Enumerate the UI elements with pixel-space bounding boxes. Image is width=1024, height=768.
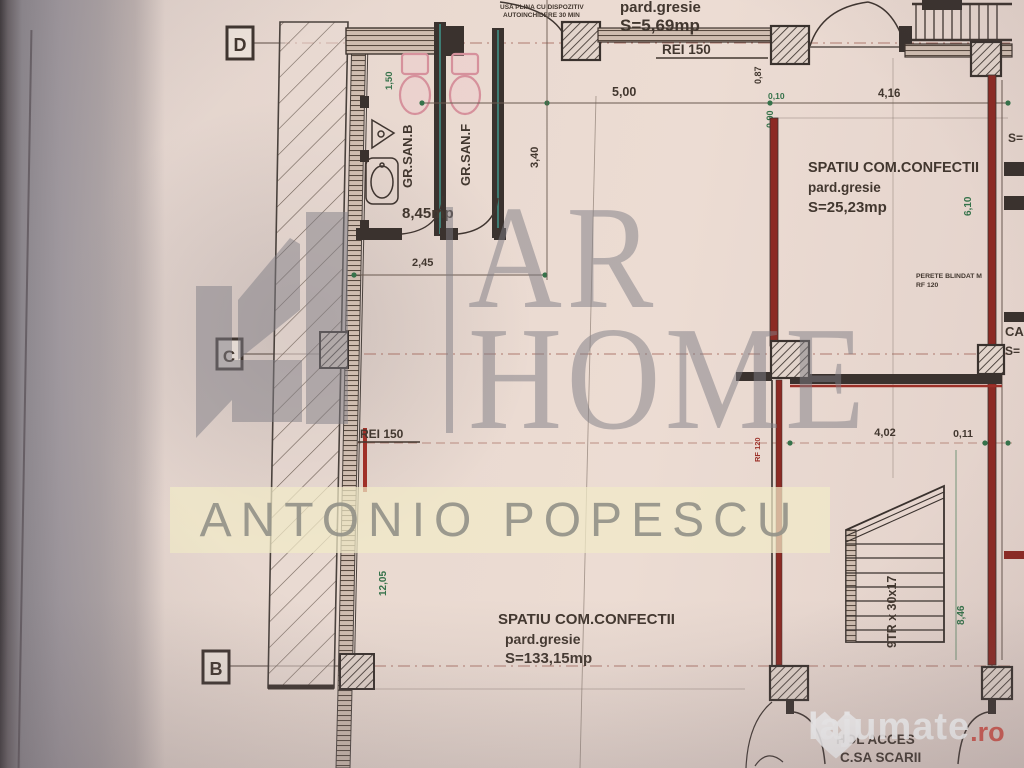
column-axis-b-mid bbox=[770, 666, 808, 700]
site-tld: .ro bbox=[970, 717, 1005, 748]
toilet-san-b bbox=[400, 54, 430, 114]
dim-6-10: 6,10 bbox=[963, 196, 974, 216]
confectii-small-name: SPATIU COM.CONFECTII bbox=[808, 160, 979, 176]
dim-12-05: 12,05 bbox=[378, 571, 389, 596]
door-note-line2: AUTOINCHIDERE 30 MIN bbox=[503, 12, 580, 19]
dim-0-11: 0,11 bbox=[953, 428, 973, 440]
dim-3-40: 3,40 bbox=[529, 147, 541, 168]
dim-4-02: 4,02 bbox=[874, 427, 895, 439]
dim-4-16: 4,16 bbox=[878, 88, 900, 100]
door-note-line1: USA PLINA CU DISPOZITIV bbox=[500, 4, 584, 11]
sink-fixture bbox=[366, 158, 398, 204]
dim-0-87: 0,87 bbox=[753, 66, 763, 84]
arhome-watermark-line2: HOME bbox=[468, 319, 869, 440]
urinal-fixture bbox=[372, 120, 394, 148]
vestibule-finish: pard.gresie bbox=[620, 0, 701, 16]
site-logo-icon bbox=[806, 706, 866, 764]
door-arc-entrance-left bbox=[810, 2, 868, 46]
edge-room-ca: CA bbox=[1005, 324, 1024, 339]
edge-area-mid: S= bbox=[1005, 344, 1020, 358]
arhome-divider-bar bbox=[446, 207, 453, 433]
column-axis-b-right bbox=[982, 667, 1012, 699]
rei150-left-label: REI 150 bbox=[360, 427, 404, 441]
agent-watermark-band: ANTONIO POPESCU bbox=[170, 487, 830, 553]
grid-marker-d: D bbox=[234, 35, 247, 55]
dim-0-10: 0,10 bbox=[768, 91, 785, 101]
stair-note-label: 9TR x 30x17 bbox=[885, 576, 899, 648]
arhome-watermark: AR HOME bbox=[468, 198, 869, 441]
edge-area-top: S= bbox=[1008, 131, 1023, 145]
column-axis-d-corner bbox=[971, 42, 1001, 76]
floorplan-photo: D C B REI 150 bbox=[0, 0, 1024, 768]
toilet-san-f bbox=[450, 54, 480, 114]
confectii-large-finish: pard.gresie bbox=[505, 631, 581, 647]
arhome-logo bbox=[196, 212, 348, 438]
grid-marker-b: B bbox=[210, 659, 223, 679]
dim-2-45: 2,45 bbox=[412, 257, 433, 269]
column-axis-b-left bbox=[340, 654, 374, 689]
perete-note-line2: RF 120 bbox=[916, 282, 939, 289]
dim-5-00: 5,00 bbox=[612, 85, 636, 99]
column-axis-d-right bbox=[771, 26, 809, 64]
rei150-top-label: REI 150 bbox=[662, 42, 711, 57]
perete-note-line1: PERETE BLINDAT M bbox=[916, 273, 982, 280]
staircase: 9TR x 30x17 bbox=[846, 486, 944, 648]
agent-name: ANTONIO POPESCU bbox=[200, 493, 801, 548]
room-confectii-large: SPATIU COM.CONFECTII pard.gresie S=133,1… bbox=[498, 611, 675, 667]
column-axis-d-mid bbox=[562, 22, 600, 60]
san-b-label: GR.SAN.B bbox=[400, 124, 415, 188]
dim-8-46: 8,46 bbox=[956, 605, 967, 625]
door-arc-bottom-left bbox=[746, 702, 772, 768]
vestibule-area: S=5,69mp bbox=[620, 16, 700, 35]
confectii-large-area: S=133,15mp bbox=[505, 650, 592, 667]
confectii-small-finish: pard.gresie bbox=[808, 180, 881, 195]
confectii-large-name: SPATIU COM.CONFECTII bbox=[498, 611, 675, 628]
site-watermark: lajumate .ro bbox=[806, 706, 1005, 749]
dim-1-50: 1,50 bbox=[384, 72, 395, 91]
exterior-stair-grate bbox=[912, 0, 1012, 40]
column-axis-c-right bbox=[978, 345, 1004, 374]
